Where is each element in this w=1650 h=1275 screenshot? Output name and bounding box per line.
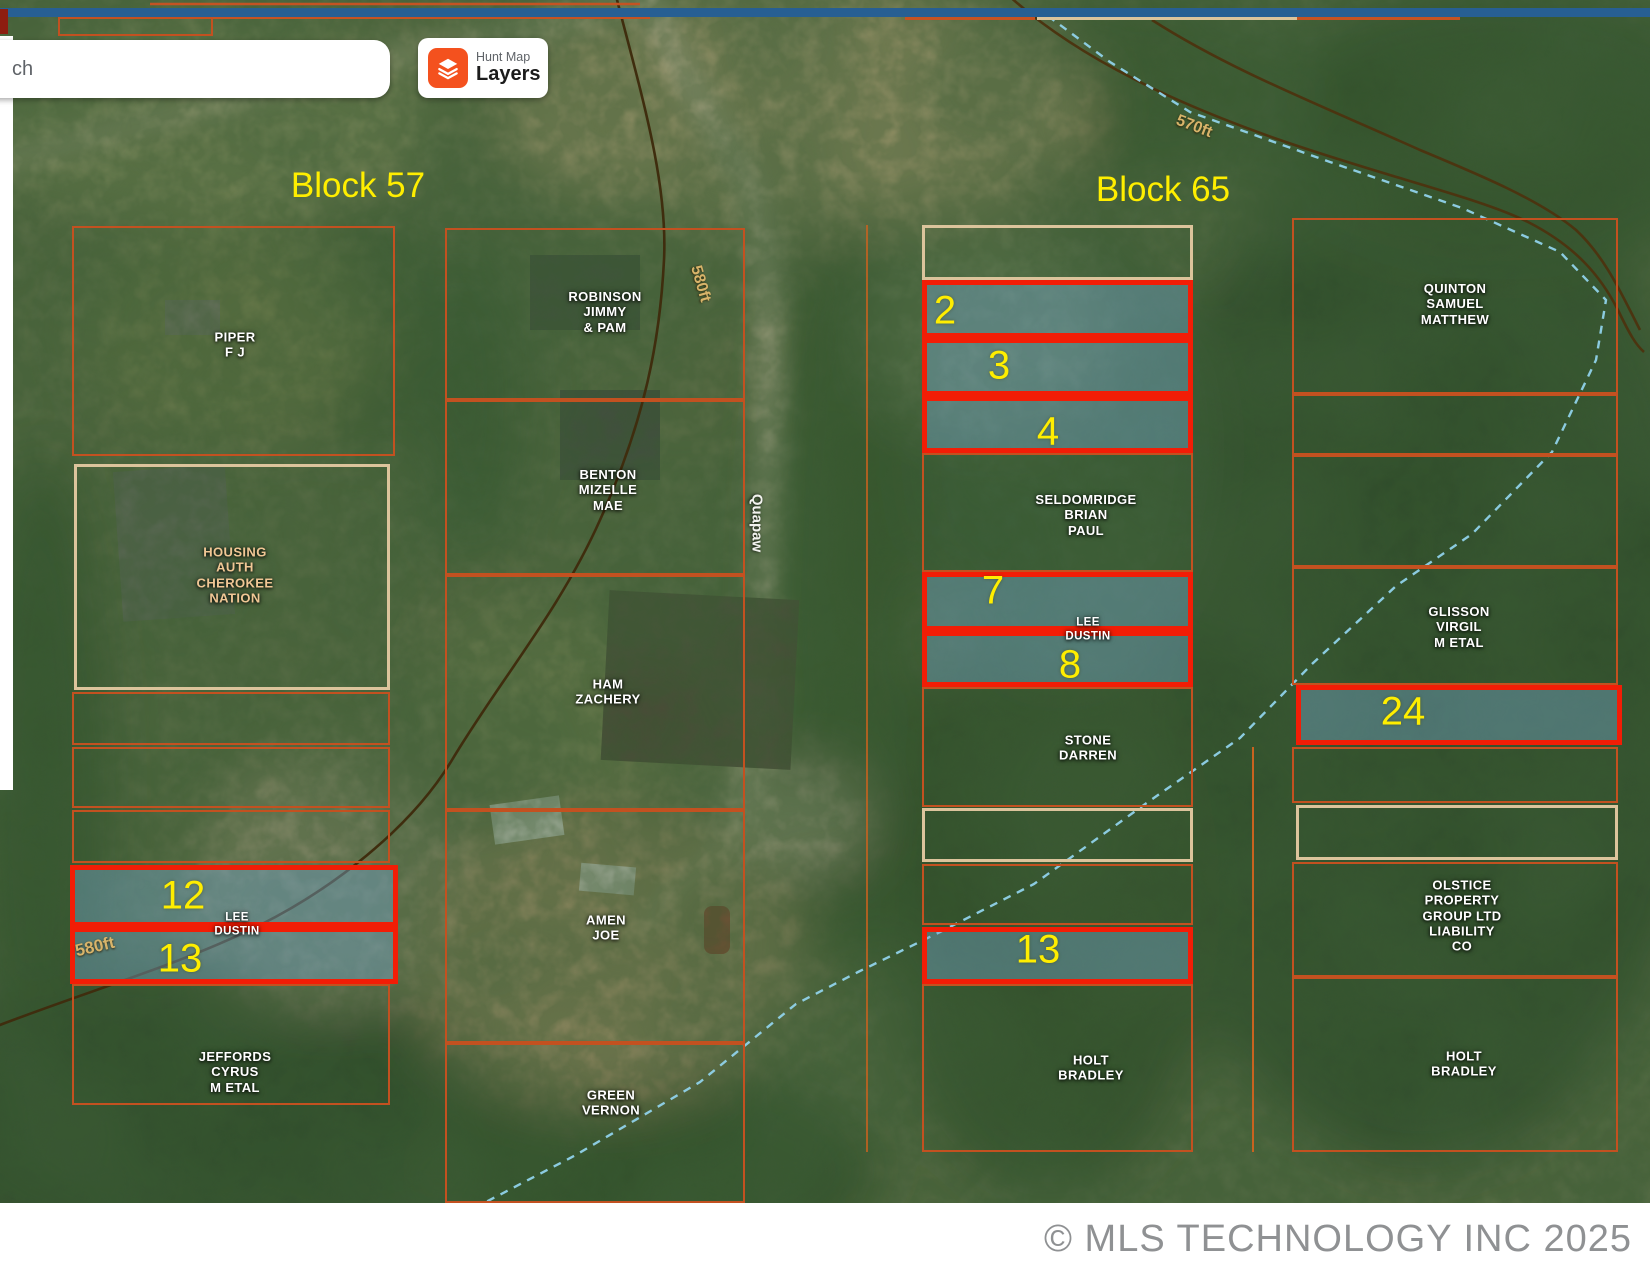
block-65-label: Block 65 xyxy=(1096,170,1230,210)
lot-number-12: 12 xyxy=(161,874,206,919)
owner-label-olstice: OLSTICE PROPERTY GROUP LTD LIABILITY CO xyxy=(1423,878,1502,955)
lot-number-7: 7 xyxy=(982,569,1004,614)
left-edge-marker xyxy=(0,9,8,34)
left-panel-edge xyxy=(0,36,13,790)
lot-number-4: 4 xyxy=(1037,410,1059,455)
parcel-tan-strip-65-top[interactable] xyxy=(922,225,1193,280)
owner-label-amen: AMEN JOE xyxy=(586,913,626,944)
search-input[interactable]: ch xyxy=(0,40,390,98)
owner-label-lee-dustin-b65: LEE DUSTIN xyxy=(1065,616,1110,643)
parcel-line-top-mid xyxy=(905,17,1035,20)
parcel-stone[interactable] xyxy=(922,687,1193,807)
lot-number-13-b65: 13 xyxy=(1016,928,1061,973)
owner-label-holt-mid: HOLT BRADLEY xyxy=(1058,1053,1124,1084)
parcel-line-top-right xyxy=(1297,17,1460,20)
layers-button[interactable]: Hunt Map Layers xyxy=(418,38,548,98)
parcel-tan-strip-65r[interactable] xyxy=(1296,805,1618,860)
owner-label-robinson: ROBINSON JIMMY & PAM xyxy=(568,289,641,335)
owner-label-holt-right: HOLT BRADLEY xyxy=(1431,1049,1497,1080)
owner-label-green: GREEN VERNON xyxy=(582,1088,640,1119)
parcel-line-road-edge xyxy=(866,225,868,1152)
highlighted-lot-24-block65[interactable] xyxy=(1296,685,1622,745)
copyright-footer: © MLS TECHNOLOGY INC 2025 xyxy=(0,1203,1650,1275)
parcel-strip-65r1[interactable] xyxy=(1292,394,1618,455)
top-blue-bar xyxy=(0,8,1650,17)
lot-number-8: 8 xyxy=(1059,643,1081,688)
parcel-strip-65r2[interactable] xyxy=(1292,455,1618,567)
parcel-strip-65r3[interactable] xyxy=(1292,747,1618,803)
parcel-green[interactable] xyxy=(445,1043,745,1203)
parcel-strip-65[interactable] xyxy=(922,864,1193,925)
parcel-strip-57a[interactable] xyxy=(72,692,390,745)
highlighted-lot-3-block65[interactable] xyxy=(922,338,1193,396)
parcel-line-65r-outer xyxy=(1252,747,1254,1152)
lot-number-24: 24 xyxy=(1381,690,1426,735)
parcel-line-top-tan xyxy=(1037,17,1297,20)
parcel-top-edge-fragment[interactable] xyxy=(58,17,213,36)
lot-number-3: 3 xyxy=(988,344,1010,389)
parcel-strip-57c[interactable] xyxy=(72,810,390,863)
owner-label-ham: HAM ZACHERY xyxy=(575,677,640,708)
search-input-text: ch xyxy=(12,58,33,81)
owner-label-seldomridge: SELDOMRIDGE BRIAN PAUL xyxy=(1035,492,1136,538)
parcel-tan-strip-65-mid[interactable] xyxy=(922,808,1193,862)
hunt-map-app: Block 57 Block 65 12 13 2 3 4 7 8 13 24 … xyxy=(0,0,1650,1275)
owner-label-piper: PIPER F J xyxy=(214,330,255,361)
layers-button-text: Hunt Map Layers xyxy=(476,51,541,85)
street-label-quapaw: Quapaw xyxy=(749,494,766,552)
layers-button-label: Layers xyxy=(476,64,541,85)
copyright-text: © MLS TECHNOLOGY INC 2025 xyxy=(1044,1218,1632,1261)
owner-label-lee-dustin-b57: LEE DUSTIN xyxy=(214,911,259,938)
lot-number-2: 2 xyxy=(934,289,956,334)
layers-icon xyxy=(428,48,468,88)
owner-label-jeffords: JEFFORDS CYRUS M ETAL xyxy=(199,1049,272,1095)
owner-label-glisson: GLISSON VIRGIL M ETAL xyxy=(1428,604,1489,650)
map-canvas[interactable]: Block 57 Block 65 12 13 2 3 4 7 8 13 24 … xyxy=(0,0,1650,1203)
block-57-label: Block 57 xyxy=(291,166,425,206)
parcel-strip-57b[interactable] xyxy=(72,747,390,808)
owner-label-housing-auth: HOUSING AUTH CHEROKEE NATION xyxy=(197,544,274,605)
owner-label-benton: BENTON MIZELLE MAE xyxy=(579,467,637,513)
lot-number-13-b57: 13 xyxy=(158,937,203,982)
highlighted-lot-7-block65[interactable] xyxy=(922,572,1193,631)
highlighted-lot-2-block65[interactable] xyxy=(922,280,1193,338)
owner-label-quinton: QUINTON SAMUEL MATTHEW xyxy=(1421,281,1489,327)
highlighted-lot-8-block65[interactable] xyxy=(922,631,1193,687)
owner-label-stone: STONE DARREN xyxy=(1059,733,1117,764)
